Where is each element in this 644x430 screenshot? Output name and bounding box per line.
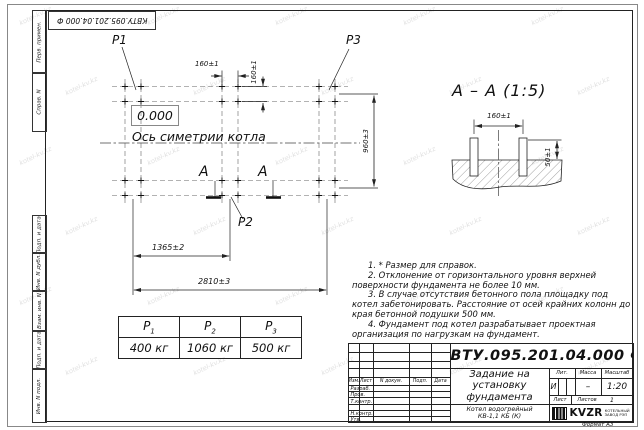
scale-value: 1:20 [601,378,633,395]
margin-box-vzam-inv: Взам. инв. N [32,290,47,332]
col-data: Дата [431,377,450,385]
title-block: КВТУ.095.201.04.000 Ф Изм. Лист N докум.… [348,343,634,423]
section-dim-50: 50±1 [543,137,553,177]
company-name: KVZR [569,407,602,419]
margin-box-sprav-n: Справ. N [32,72,47,132]
load-table-value-p2: 1060 кг [180,338,241,359]
load-table-header-p2: P2 [180,317,241,338]
level-mark: 0.000 [131,105,179,126]
load-table-header-row: P1 P2 P3 [119,317,302,338]
load-table-value-row: 400 кг 1060 кг 500 кг [119,338,302,359]
load-point-p1-label: P1 [112,33,127,47]
section-mark-a-right: А [258,164,268,180]
note-3: 3. В случае отсутствия бетонного пола пл… [352,290,633,319]
note-4: 4. Фундамент под котел разрабатывает про… [352,320,633,340]
margin-box-podp-data-2: Подп. и дата [32,330,47,370]
mass-label: Масса [575,368,601,378]
format-label: Формат А3 [582,422,613,428]
product-name: Котел водогрейный КВ-1,1 КБ (К) [450,404,549,422]
load-table: P1 P2 P3 400 кг 1060 кг 500 кг [118,316,302,359]
dim-960: 960±3 [361,121,371,161]
load-table-value-p3: 500 кг [241,338,302,359]
corner-stamp: КВТУ.095.201.04.000 Ф [48,11,156,30]
lit-value: И [549,378,558,395]
col-ndokum: N докум. [373,377,409,385]
row-tkontr: Т.контр. [351,399,373,405]
col-list: Лист [359,377,373,385]
technical-notes: 1. * Размер для справок. 2. Отклонение о… [352,261,633,339]
load-table-header-p1: P1 [119,317,180,338]
symmetry-axis-label: Ось симетрии котла [132,129,266,144]
margin-box-podp-data-1: Подп. и дата [32,215,47,254]
drawing-sheet: kotel-kv.kzkotel-kv.kzkotel-kv.kzkotel-k… [0,0,644,430]
title-block-doc-number: КВТУ.095.201.04.000 Ф [450,344,633,368]
row-utv: Утв. [351,417,362,423]
col-podp: Подп. [409,377,431,385]
drawing-title: Задание на установку фундамента [450,368,549,404]
section-mark-a-left: А [199,164,209,180]
scale-label: Масштаб [601,368,633,378]
sheets-value: 1 [605,395,619,404]
margin-box-perv-primen: Перв. примен. [32,10,47,74]
corner-stamp-number: КВТУ.095.201.04.000 Ф [57,16,148,25]
load-point-p2-label: P2 [238,215,253,229]
dim-160-horizontal: 160±1 [195,60,219,68]
dim-1365: 1365±2 [152,243,184,252]
dim-2810: 2810±3 [198,277,230,286]
kvzr-logo-icon [552,407,567,420]
sheets-label: Листов [573,395,601,404]
mass-value: – [575,378,601,395]
load-table-header-p3: P3 [241,317,302,338]
lit-label: Лит. [549,368,575,378]
company-cell: KVZR КОТЕЛЬНЫЙ ЗАВОД РЭП [549,404,633,422]
sheet-label: Лист [549,395,571,404]
col-izm: Изм. [349,377,359,385]
section-view-title: А – А (1:5) [452,81,546,100]
row-prov: Пров. [351,392,366,398]
load-table-value-p1: 400 кг [119,338,180,359]
company-subtitle: КОТЕЛЬНЫЙ ЗАВОД РЭП [605,409,630,417]
load-point-p3-label: P3 [346,33,361,47]
dim-160-vertical: 160±1 [249,52,259,92]
margin-box-inv-dubl: Инв. N дубл. [32,252,47,292]
section-dim-160: 160±1 [476,112,522,120]
margin-box-inv-podl: Инв. N подл. [32,368,47,423]
note-2: 2. Отклонение от горизонтального уровня … [352,271,633,291]
